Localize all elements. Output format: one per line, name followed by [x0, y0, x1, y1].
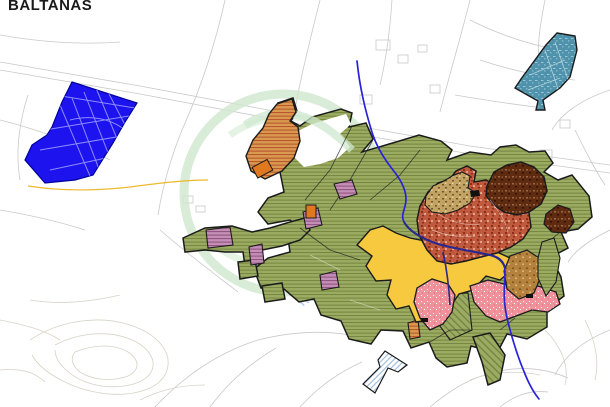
mauve-zone-c: [206, 227, 233, 248]
red-hatch-zone-south: [408, 320, 420, 339]
orange-parcel-2: [306, 205, 316, 218]
zoning-map-page: BALTANÁS: [0, 0, 610, 407]
green-parcel-south-2: [262, 283, 285, 302]
marker-icon-east: [526, 294, 533, 298]
church-block: [470, 190, 480, 197]
page-title: BALTANÁS: [8, 0, 92, 14]
marker-icon-south: [421, 318, 428, 322]
mauve-zone-d: [249, 244, 264, 265]
mauve-zone-e: [320, 271, 339, 290]
zoning-map: [0, 0, 610, 407]
